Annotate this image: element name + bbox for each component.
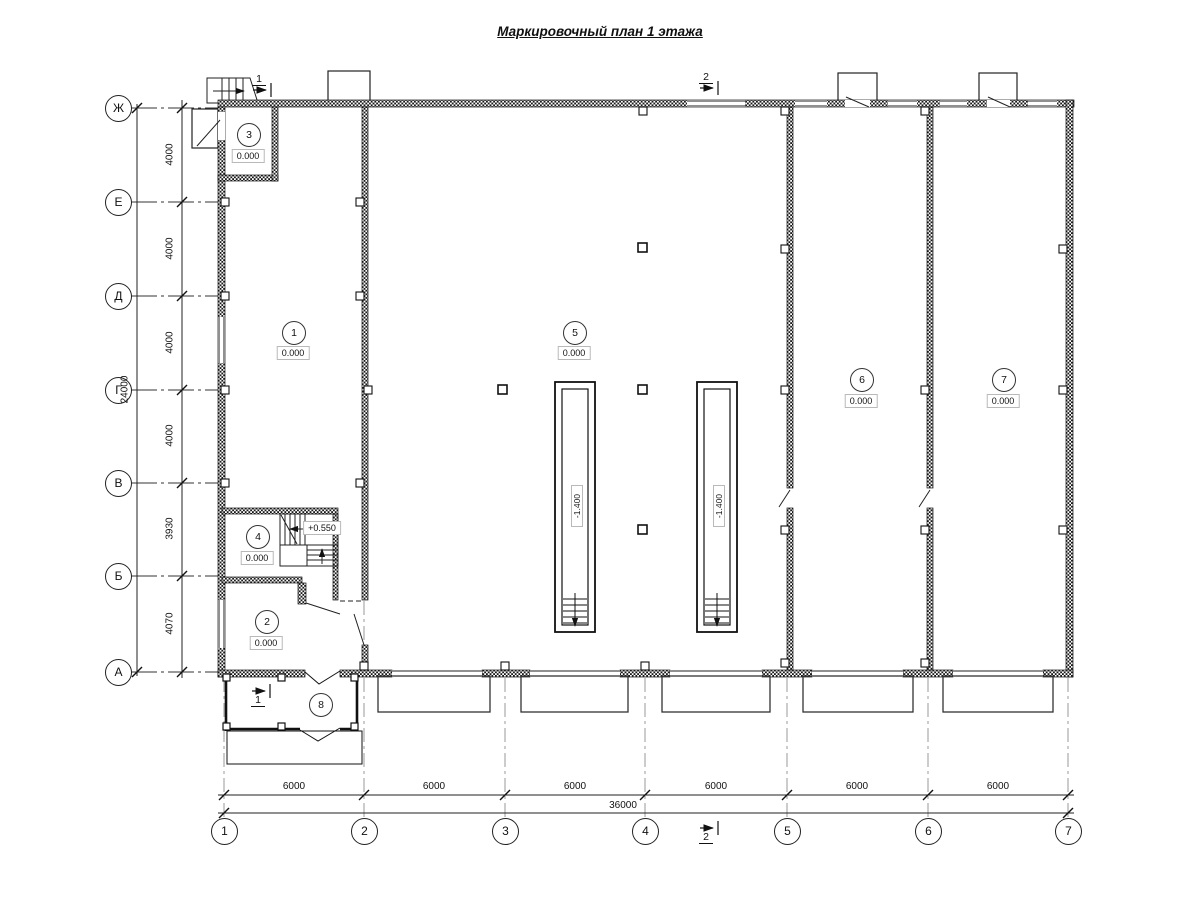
col-axis-6: 6 (915, 818, 942, 845)
section-arrows (252, 81, 718, 835)
annex-walls (226, 671, 362, 764)
dim-col-6: 6000 (973, 781, 1023, 792)
dim-row-3: 4000 (165, 321, 176, 365)
dim-row-2: 4000 (165, 227, 176, 271)
row-axis-d: Д (105, 283, 132, 310)
col-axis-3: 3 (492, 818, 519, 845)
floor-plan-sheet: Маркировочный план 1 этажа (0, 0, 1200, 900)
pit-elevation-1: -1.400 (571, 485, 583, 527)
loading-platforms (378, 676, 1053, 712)
row-axis-lines (131, 108, 218, 672)
dim-row-total: 24000 (120, 368, 131, 412)
row-axis-v: В (105, 470, 132, 497)
dim-col-total: 36000 (598, 800, 648, 811)
room-tag-7: 7 (992, 368, 1016, 392)
room-tag-3: 3 (237, 123, 261, 147)
col-axis-5: 5 (774, 818, 801, 845)
door-leaves (197, 97, 1010, 645)
grid-centerlines (224, 601, 1068, 818)
col-axis-4: 4 (632, 818, 659, 845)
row-axis-zh: Ж (105, 95, 132, 122)
room-elev-2: 0.000 (250, 636, 283, 650)
room-tag-6: 6 (850, 368, 874, 392)
col-axis-1: 1 (211, 818, 238, 845)
dim-col-1: 6000 (269, 781, 319, 792)
pit-elevation-2: -1.400 (713, 485, 725, 527)
canopies (192, 71, 1017, 148)
section-label-1-top: 1 (252, 74, 266, 86)
room-tag-5: 5 (563, 321, 587, 345)
row-axis-b: Б (105, 563, 132, 590)
section-label-1-bottom: 1 (251, 695, 265, 707)
room-tag-4: 4 (246, 525, 270, 549)
annex-columns (223, 674, 358, 730)
room-tag-1: 1 (282, 321, 306, 345)
row-axis-a: А (105, 659, 132, 686)
room-elev-6: 0.000 (845, 394, 878, 408)
room-elev-1: 0.000 (277, 346, 310, 360)
dimension-lines (137, 100, 1074, 813)
section-label-2-top: 2 (699, 72, 713, 84)
dim-col-3: 6000 (550, 781, 600, 792)
room-elev-5: 0.000 (558, 346, 591, 360)
room-elev-3: 0.000 (232, 149, 265, 163)
section-label-2-bottom: 2 (699, 832, 713, 844)
room-elev-7: 0.000 (987, 394, 1020, 408)
dim-col-4: 6000 (691, 781, 741, 792)
exterior-stair (207, 78, 258, 103)
dim-col-2: 6000 (409, 781, 459, 792)
room-tag-2: 2 (255, 610, 279, 634)
plan-linework (0, 0, 1200, 900)
room-tag-8: 8 (309, 693, 333, 717)
col-axis-2: 2 (351, 818, 378, 845)
dim-row-4: 4000 (165, 414, 176, 458)
room-elev-4: 0.000 (241, 551, 274, 565)
dim-row-6: 4070 (165, 602, 176, 646)
dim-row-5: 3930 (165, 507, 176, 551)
stair-landing-elevation: +0.550 (303, 521, 341, 535)
col-axis-7: 7 (1055, 818, 1082, 845)
dim-row-1: 4000 (165, 133, 176, 177)
dim-col-5: 6000 (832, 781, 882, 792)
row-axis-e: Е (105, 189, 132, 216)
